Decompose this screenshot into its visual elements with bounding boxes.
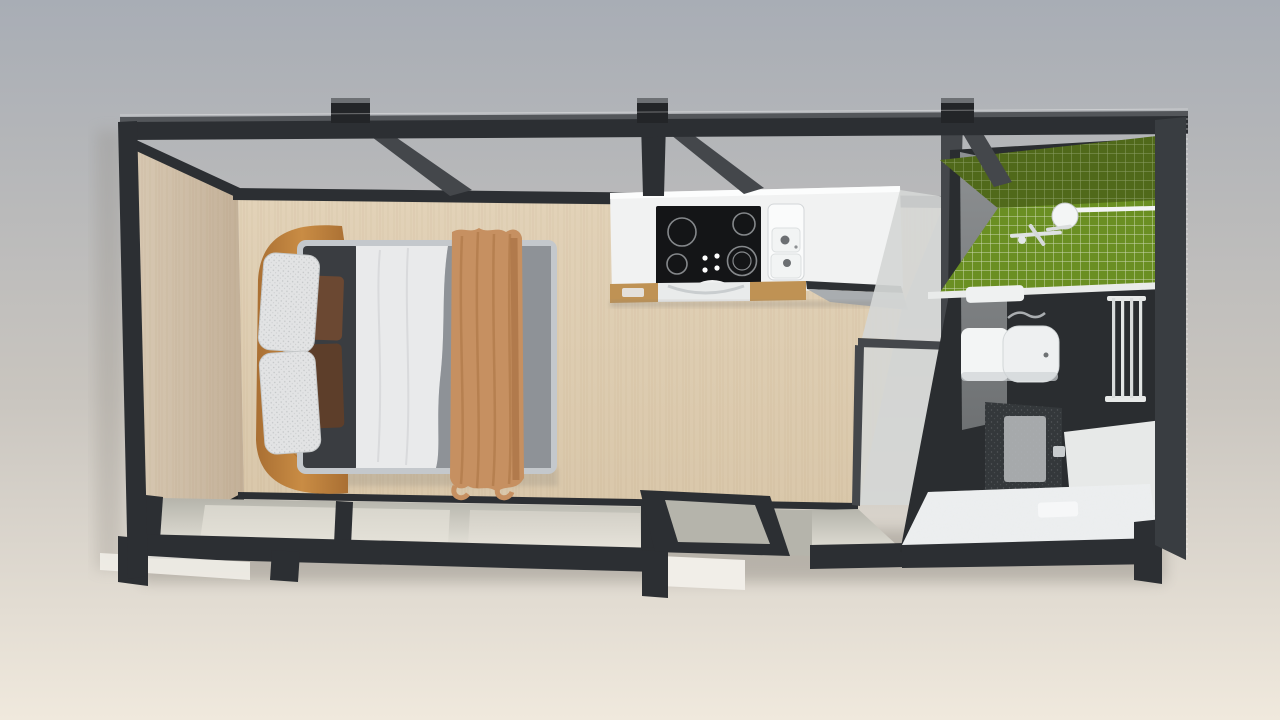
radiator-bar	[1121, 298, 1124, 398]
white-pillow	[258, 252, 321, 353]
glass-reflection	[468, 510, 640, 547]
cabinet-handle	[622, 288, 644, 297]
bath-mat	[1038, 501, 1078, 517]
kitchen-counter[interactable]	[610, 186, 908, 310]
flush-button	[1044, 353, 1049, 358]
mullion-post	[270, 550, 300, 582]
left-wood-wall	[132, 138, 244, 556]
radiator-bar	[1139, 298, 1142, 398]
mixer-knob	[1018, 236, 1026, 244]
sink-drain	[794, 245, 797, 248]
double-bed[interactable]	[256, 225, 558, 498]
faucet	[783, 259, 791, 267]
black-cooktop[interactable]	[656, 206, 761, 285]
white-pillow	[259, 350, 322, 455]
towel	[966, 285, 1025, 303]
joist-stub	[637, 98, 668, 123]
counter-shadow	[610, 301, 906, 307]
3d-viewport[interactable]	[0, 0, 1280, 720]
shower-head	[1052, 203, 1078, 229]
door-post	[642, 550, 668, 598]
vanity-handle	[1053, 446, 1065, 457]
vanity-cabinet[interactable]	[985, 402, 1065, 500]
toilet-shadow	[961, 372, 1058, 381]
white-sheet	[356, 246, 448, 468]
window-mullion	[334, 501, 353, 546]
radiator-bar	[1130, 298, 1133, 398]
frosted-door-panel	[1004, 416, 1046, 482]
door-outer-face	[660, 556, 745, 590]
tan-throw-blanket	[450, 228, 524, 498]
joist-stub	[331, 98, 370, 123]
window-sill-band	[810, 543, 905, 569]
right-outer-wall	[1155, 117, 1186, 560]
faucet	[781, 236, 790, 245]
door-glass	[665, 500, 770, 544]
cabinet-front-strip	[610, 281, 908, 310]
radiator-bar	[1112, 298, 1115, 398]
wood-cabinet-front	[750, 281, 806, 301]
kitchen-sink[interactable]	[768, 204, 804, 280]
